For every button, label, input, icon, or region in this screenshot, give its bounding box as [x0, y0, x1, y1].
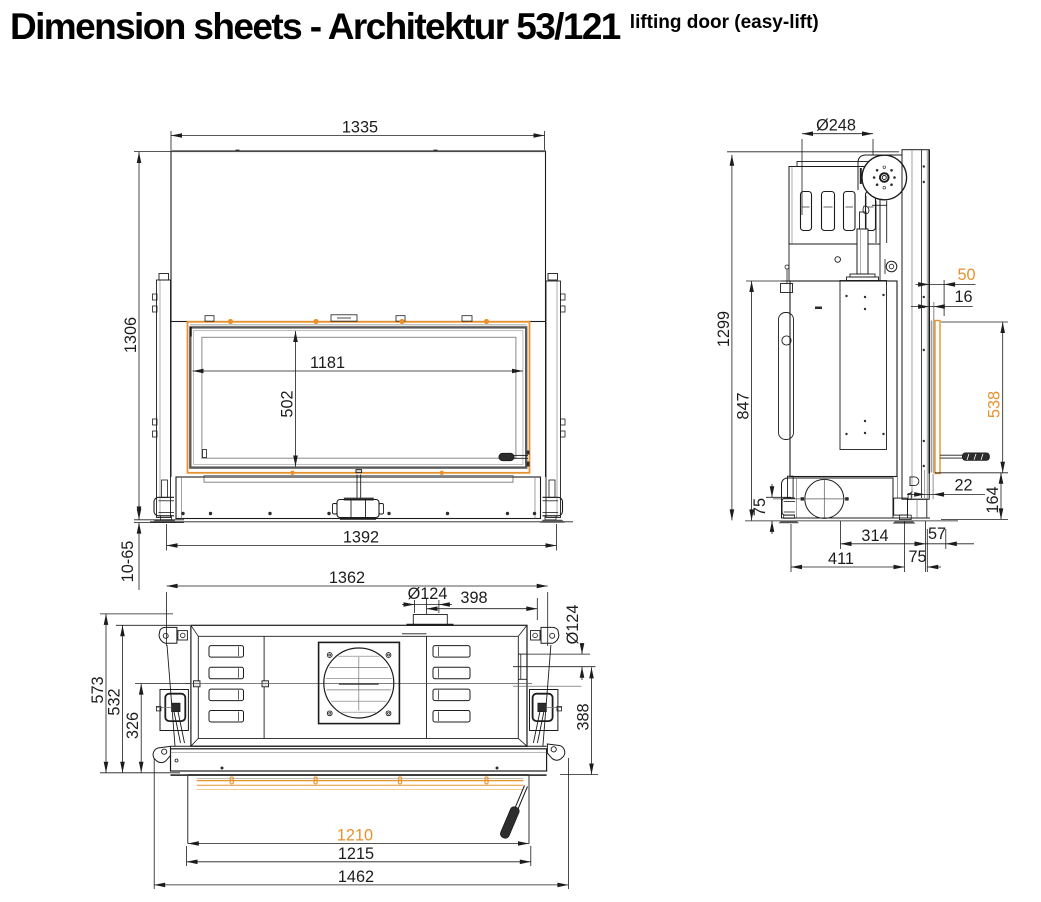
svg-text:1210: 1210 — [337, 827, 373, 845]
svg-text:164: 164 — [984, 486, 1002, 513]
svg-text:16: 16 — [954, 288, 972, 306]
svg-text:1299: 1299 — [715, 311, 733, 347]
svg-text:538: 538 — [986, 391, 1004, 418]
svg-text:326: 326 — [124, 712, 142, 739]
svg-text:22: 22 — [954, 477, 972, 495]
svg-text:1215: 1215 — [338, 845, 374, 863]
svg-text:388: 388 — [575, 703, 593, 730]
svg-text:1335: 1335 — [342, 119, 378, 137]
svg-text:1392: 1392 — [343, 529, 379, 547]
svg-text:Ø124: Ø124 — [408, 585, 448, 603]
svg-text:1362: 1362 — [329, 569, 365, 587]
svg-text:1462: 1462 — [338, 868, 374, 886]
svg-text:Ø248: Ø248 — [816, 117, 856, 135]
svg-text:50: 50 — [957, 266, 975, 284]
svg-text:573: 573 — [89, 676, 107, 703]
svg-text:1306: 1306 — [122, 317, 140, 353]
svg-text:75: 75 — [908, 548, 926, 566]
svg-text:57: 57 — [928, 525, 946, 543]
svg-text:398: 398 — [460, 589, 487, 607]
svg-text:1181: 1181 — [310, 354, 345, 372]
svg-text:10-65: 10-65 — [119, 541, 137, 583]
svg-text:502: 502 — [279, 390, 297, 417]
svg-text:411: 411 — [828, 550, 854, 568]
svg-text:847: 847 — [735, 392, 753, 419]
svg-text:75: 75 — [751, 498, 769, 516]
svg-text:314: 314 — [861, 527, 888, 545]
svg-text:Ø124: Ø124 — [564, 605, 582, 645]
svg-text:532: 532 — [106, 688, 124, 715]
